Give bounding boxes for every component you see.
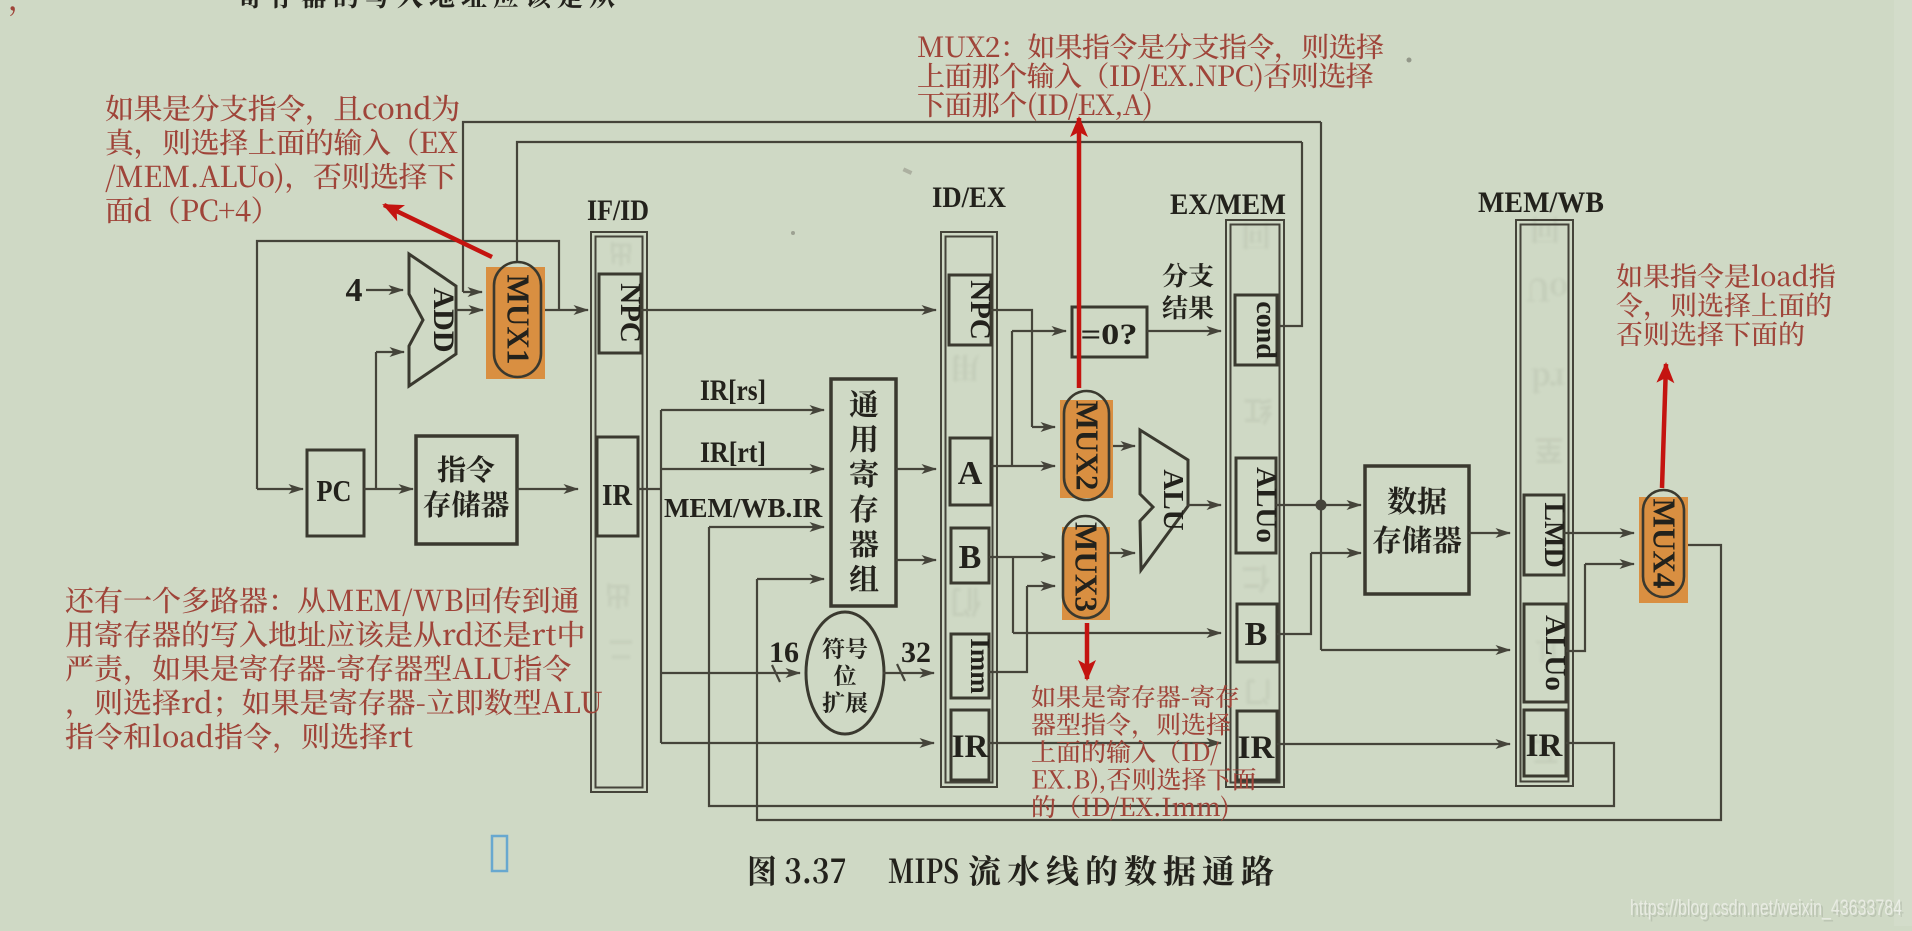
- svg-text:4: 4: [346, 272, 363, 309]
- svg-text:=0?: =0?: [1081, 318, 1138, 351]
- svg-text:IR: IR: [602, 477, 633, 512]
- svg-text:指令和load指令，则选择rt: 指令和load指令，则选择rt: [65, 715, 413, 756]
- svg-text:仁: 仁: [1242, 559, 1270, 599]
- svg-text:NPC: NPC: [614, 283, 646, 343]
- svg-text:结果: 结果: [1162, 288, 1214, 325]
- svg-text:用: 用: [950, 348, 980, 392]
- svg-text:数据: 数据: [1387, 477, 1447, 521]
- svg-text:ID/EX: ID/EX: [932, 181, 1006, 214]
- svg-text:ADD: ADD: [427, 288, 460, 353]
- svg-text:MEM/WB.IR: MEM/WB.IR: [664, 493, 823, 523]
- svg-text:rd: rd: [1531, 360, 1565, 404]
- svg-text:通用寄存器组: 通用寄存器组: [849, 380, 879, 599]
- svg-text:的（ID/EX.Imm): 的（ID/EX.Imm): [1031, 788, 1230, 824]
- svg-text:MUX3: MUX3: [1069, 522, 1105, 612]
- svg-text:面d（PC+4）: 面d（PC+4）: [105, 189, 279, 230]
- svg-text:MEM/WB: MEM/WB: [1478, 186, 1604, 219]
- svg-text:寄存器的写入地址应该是从: 寄存器的写入地址应该是从: [237, 0, 621, 14]
- svg-text:32: 32: [901, 636, 931, 669]
- svg-text:16: 16: [769, 636, 799, 669]
- svg-text:，: ，: [8, 0, 38, 19]
- svg-text:门: 门: [1245, 674, 1271, 711]
- svg-text:存储器: 存储器: [1372, 516, 1462, 560]
- svg-text:ALUo: ALUo: [1539, 615, 1571, 691]
- svg-text:们: 们: [951, 582, 981, 626]
- svg-text:A: A: [958, 455, 983, 492]
- svg-text:IR: IR: [1526, 728, 1564, 764]
- svg-text:图 3.37: 图 3.37: [747, 846, 847, 893]
- svg-text:oU: oU: [1526, 270, 1568, 314]
- svg-text:存储器: 存储器: [422, 483, 509, 524]
- svg-text:MIPS: MIPS: [888, 846, 959, 893]
- svg-text:至: 至: [1535, 431, 1563, 471]
- svg-text:MUX1: MUX1: [501, 275, 537, 365]
- svg-text:ALU: ALU: [1157, 469, 1189, 530]
- svg-text:下面那个(ID/EX,A): 下面那个(ID/EX,A): [917, 84, 1152, 124]
- svg-text:回: 回: [1241, 216, 1271, 260]
- svg-text:IR[rs]: IR[rs]: [700, 374, 766, 407]
- svg-text:EX/MEM: EX/MEM: [1170, 188, 1286, 221]
- svg-text:Imm: Imm: [965, 638, 995, 694]
- svg-text:出: 出: [609, 238, 633, 273]
- svg-text:LMD: LMD: [1538, 502, 1569, 567]
- svg-text:cond: cond: [1250, 301, 1281, 359]
- svg-text:IR[rt]: IR[rt]: [700, 436, 766, 469]
- svg-text:二: 二: [609, 634, 633, 669]
- svg-text:扩展: 扩展: [822, 685, 868, 718]
- svg-text:否则选择下面的: 否则选择下面的: [1616, 313, 1805, 352]
- svg-text:B: B: [1245, 616, 1268, 653]
- svg-text:流水线的数据通路: 流水线的数据通路: [968, 846, 1280, 893]
- svg-text:https://blog.csdn.net/weixin_4: https://blog.csdn.net/weixin_43633784: [1630, 895, 1902, 920]
- svg-text:PC: PC: [317, 473, 352, 508]
- svg-text:红: 红: [1244, 391, 1272, 431]
- svg-text:B: B: [959, 539, 982, 576]
- svg-text:IR: IR: [952, 729, 990, 765]
- svg-text:MUX4: MUX4: [1647, 499, 1683, 589]
- svg-text:IF/ID: IF/ID: [587, 194, 649, 227]
- svg-text:出: 出: [605, 578, 631, 615]
- svg-text:MUX2: MUX2: [1070, 401, 1106, 491]
